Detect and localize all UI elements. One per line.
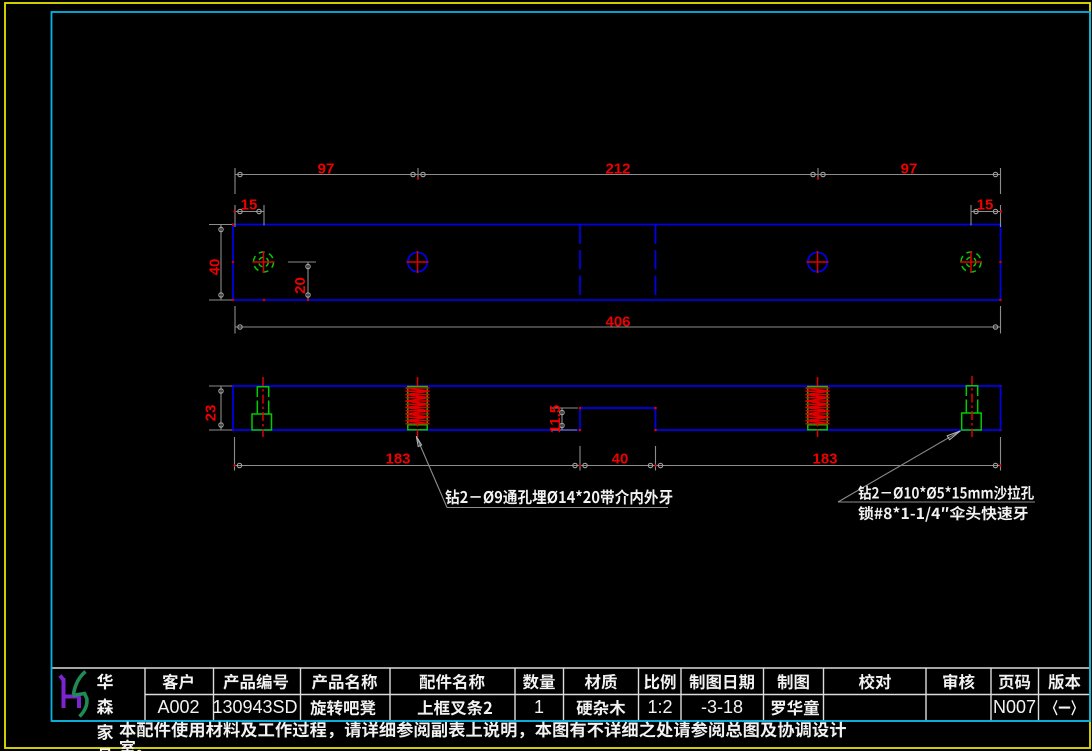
svg-text:40: 40 (612, 451, 629, 468)
svg-text:97: 97 (318, 161, 335, 178)
svg-text:183: 183 (385, 451, 410, 468)
svg-text:20: 20 (292, 277, 309, 294)
svg-text:-3-18: -3-18 (701, 697, 743, 717)
svg-text:130943SD: 130943SD (212, 697, 297, 717)
svg-text:15: 15 (977, 197, 994, 214)
svg-text:1: 1 (534, 697, 544, 717)
svg-text:15: 15 (241, 197, 258, 214)
svg-text:406: 406 (605, 314, 630, 331)
svg-text:A002: A002 (157, 697, 199, 717)
svg-text:23: 23 (203, 405, 220, 422)
svg-text:97: 97 (901, 161, 918, 178)
svg-text:N007: N007 (993, 697, 1036, 717)
svg-text:212: 212 (605, 161, 630, 178)
svg-text:40: 40 (207, 259, 224, 276)
svg-text:11.5: 11.5 (547, 405, 564, 433)
svg-text:1:2: 1:2 (647, 697, 672, 717)
svg-text:183: 183 (812, 451, 837, 468)
